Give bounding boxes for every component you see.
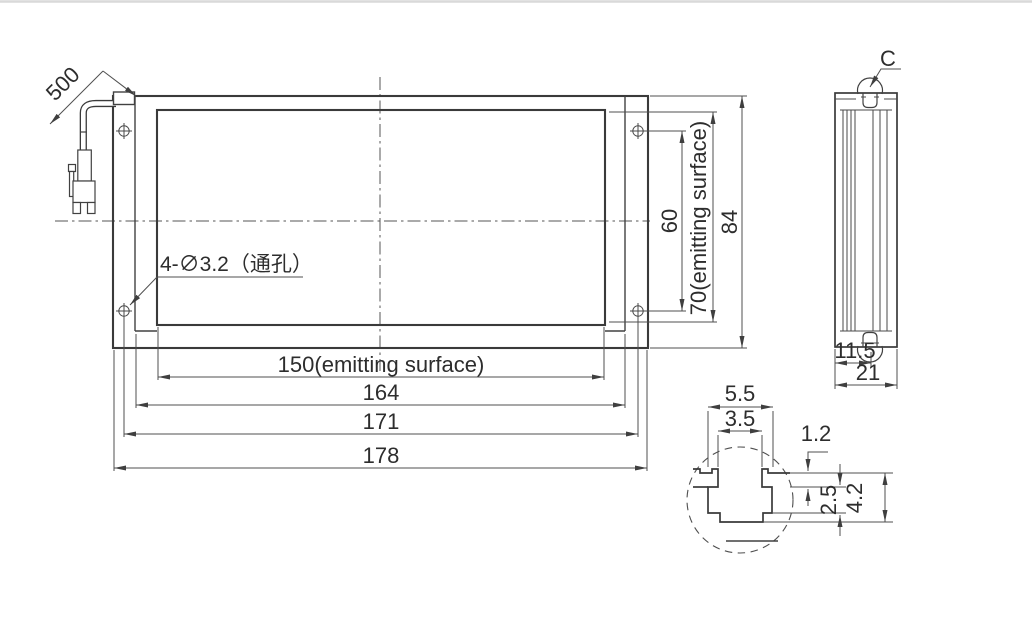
front-view bbox=[55, 77, 650, 371]
screw-hole-top-right bbox=[630, 123, 646, 139]
screw-hole-bottom-left bbox=[116, 303, 132, 319]
connector-plug bbox=[69, 150, 96, 214]
overall-width-label: 178 bbox=[363, 443, 400, 468]
detail-c-view: 5.5 3.5 1.2 2.5 4.2 bbox=[687, 381, 893, 553]
hole-spacing-h-label: 171 bbox=[363, 409, 400, 434]
total-height-label: 4.2 bbox=[842, 483, 867, 514]
cavity-width-label: 5.5 bbox=[725, 381, 756, 406]
overall-height-label: 84 bbox=[717, 210, 742, 234]
side-profile-outline bbox=[835, 93, 897, 347]
side-view: C 11.5 21 bbox=[834, 46, 901, 389]
emitting-width-label: 150(emitting surface) bbox=[278, 352, 485, 377]
screw-hole-bottom-right bbox=[630, 303, 646, 319]
body-width-label: 164 bbox=[363, 380, 400, 405]
cable bbox=[83, 104, 116, 151]
dim-line-1-2-top bbox=[808, 452, 828, 471]
detail-boundary-circle bbox=[687, 447, 793, 553]
lip-thickness-label: 1.2 bbox=[801, 421, 832, 446]
emitting-height-label: 70(emitting surface) bbox=[686, 121, 711, 315]
side-extrusion-fins bbox=[843, 110, 887, 331]
screw-hole-top-left bbox=[116, 123, 132, 139]
cavity-depth-label: 2.5 bbox=[816, 485, 841, 516]
hole-callout-label: 4-∅3.2（通孔） bbox=[160, 253, 313, 276]
slot-width-label: 3.5 bbox=[725, 406, 756, 431]
emitting-window bbox=[157, 110, 605, 325]
cable-length-label: 500 bbox=[41, 62, 85, 106]
detail-c-label: C bbox=[880, 46, 896, 71]
technical-drawing-page: 500 4-∅3.2（通孔） 150(emitting surface) 164… bbox=[0, 0, 1032, 627]
detail-c-leader bbox=[870, 69, 901, 87]
side-cap-lines bbox=[835, 99, 897, 331]
t-slot-profile bbox=[693, 469, 790, 522]
cable-assembly: 500 bbox=[41, 62, 136, 214]
led-bar-light-drawing: 500 4-∅3.2（通孔） 150(emitting surface) 164… bbox=[0, 0, 1032, 627]
cable-boot bbox=[114, 92, 135, 105]
hole-spacing-v-label: 60 bbox=[657, 209, 682, 233]
depth-label: 21 bbox=[856, 360, 880, 385]
height-dimensions: 60 70(emitting surface) 84 bbox=[609, 96, 747, 348]
